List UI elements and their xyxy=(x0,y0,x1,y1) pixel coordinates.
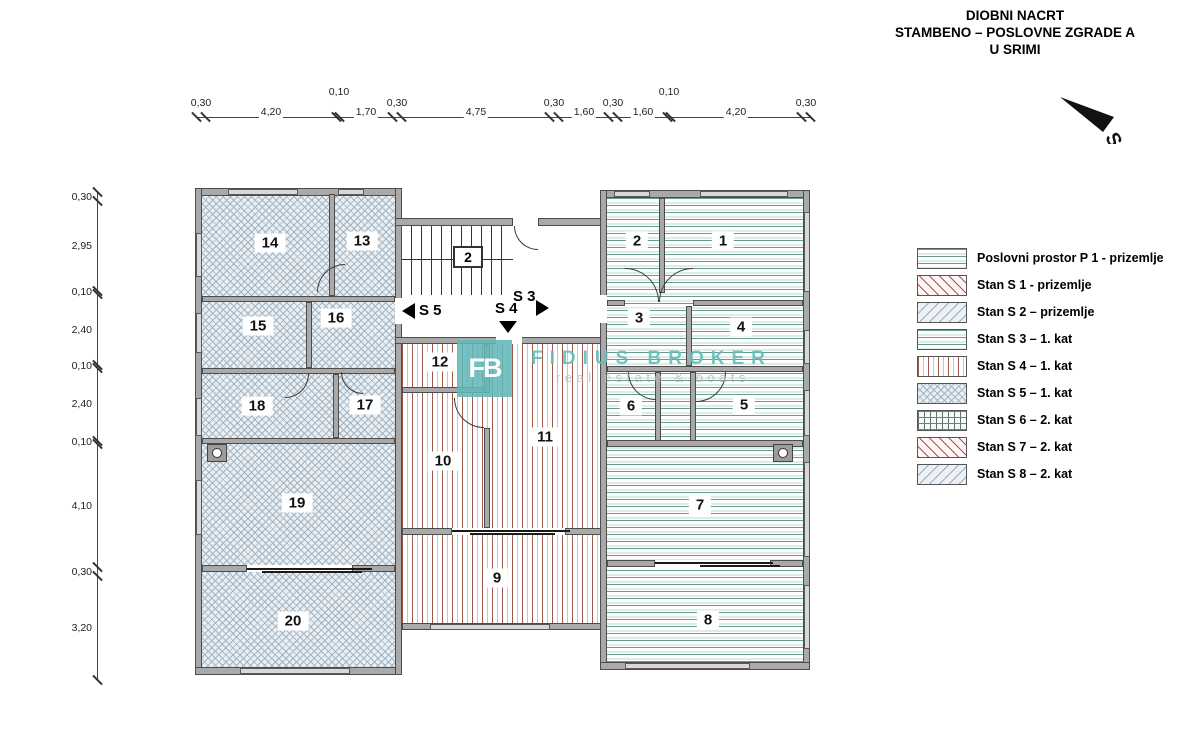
dim-label: 4,20 xyxy=(724,106,748,118)
door-gap xyxy=(600,295,607,323)
room-label-17: 17 xyxy=(350,396,381,415)
room-label-5: 5 xyxy=(733,396,755,415)
north-label: S xyxy=(1100,129,1126,144)
sliding-door xyxy=(470,533,555,535)
wall xyxy=(693,300,803,306)
room-label-1: 1 xyxy=(712,232,734,251)
legend-item: Poslovni prostor P 1 - prizemlje xyxy=(917,247,1164,269)
wall xyxy=(306,302,312,368)
dim-label: 0,30 xyxy=(70,191,94,203)
wall xyxy=(659,198,665,293)
floor-plan-page: DIOBNI NACRT STAMBENO – POSLOVNE ZGRADE … xyxy=(0,0,1200,734)
window xyxy=(196,233,202,277)
room-label-13: 13 xyxy=(347,232,378,251)
sliding-door xyxy=(655,562,773,564)
dim-label: 2,40 xyxy=(70,398,94,410)
legend-item: Stan S 7 – 2. kat xyxy=(917,436,1164,458)
window xyxy=(804,585,810,649)
legend-swatch-s7 xyxy=(917,437,967,458)
legend-item: Stan S 5 – 1. kat xyxy=(917,382,1164,404)
stair-tread xyxy=(501,226,502,295)
door-arc xyxy=(514,226,538,250)
window xyxy=(614,191,650,197)
dim-label: 1,60 xyxy=(631,106,655,118)
arrow-down-icon xyxy=(499,321,517,333)
legend-label: Poslovni prostor P 1 - prizemlje xyxy=(977,251,1164,265)
dim-label: 4,75 xyxy=(464,106,488,118)
stair-tread xyxy=(411,226,412,295)
legend-label: Stan S 6 – 2. kat xyxy=(977,413,1072,427)
sliding-door xyxy=(262,571,362,573)
dim-label: 4,20 xyxy=(259,106,283,118)
shaft-symbol xyxy=(207,444,227,462)
dim-label: 0,10 xyxy=(657,86,681,98)
legend: Poslovni prostor P 1 - prizemlje Stan S … xyxy=(917,247,1164,490)
stair-tread xyxy=(491,226,492,295)
page-title: DIOBNI NACRT STAMBENO – POSLOVNE ZGRADE … xyxy=(830,7,1200,58)
legend-item: Stan S 2 – prizemlje xyxy=(917,301,1164,323)
arrow-right-icon xyxy=(536,300,549,316)
wall xyxy=(395,188,402,675)
dim-label: 0,30 xyxy=(794,97,818,109)
wall xyxy=(195,188,402,196)
unit-marker-s5: S 5 xyxy=(419,302,442,319)
wall xyxy=(607,300,625,306)
sliding-door xyxy=(700,565,780,567)
wall xyxy=(402,528,452,535)
dim-label: 0,30 xyxy=(601,97,625,109)
window xyxy=(196,480,202,535)
room-label-6: 6 xyxy=(620,397,642,416)
room-label-19: 19 xyxy=(282,494,313,513)
window xyxy=(338,189,364,195)
room-label-11: 11 xyxy=(530,428,560,447)
legend-swatch-s6 xyxy=(917,410,967,431)
window xyxy=(228,189,298,195)
north-arrow-icon: S xyxy=(1046,88,1130,144)
dim-label: 4,10 xyxy=(70,500,94,512)
dim-label: 0,30 xyxy=(189,97,213,109)
watermark-name: FIDIUS BROKER xyxy=(531,348,772,370)
title-line2: STAMBENO – POSLOVNE ZGRADE A xyxy=(830,24,1200,41)
legend-swatch-s3 xyxy=(917,329,967,350)
room-label-3: 3 xyxy=(628,309,650,328)
window xyxy=(700,191,788,197)
legend-label: Stan S 1 - prizemlje xyxy=(977,278,1092,292)
sliding-door xyxy=(452,530,570,532)
legend-label: Stan S 8 – 2. kat xyxy=(977,467,1072,481)
legend-item: Stan S 6 – 2. kat xyxy=(917,409,1164,431)
room-label-4: 4 xyxy=(730,318,752,337)
shaft-symbol xyxy=(773,444,793,462)
legend-label: Stan S 5 – 1. kat xyxy=(977,386,1072,400)
legend-swatch-s8 xyxy=(917,464,967,485)
dim-label: 0,30 xyxy=(385,97,409,109)
title-line1: DIOBNI NACRT xyxy=(830,7,1200,24)
dim-label: 0,10 xyxy=(70,286,94,298)
wall xyxy=(538,218,607,226)
dim-label: 2,40 xyxy=(70,324,94,336)
room-label-16: 16 xyxy=(321,309,352,328)
top-dimension-line xyxy=(197,117,811,118)
wall xyxy=(202,438,395,444)
dim-label: 0,30 xyxy=(542,97,566,109)
dim-label: 3,20 xyxy=(70,622,94,634)
room-label-8: 8 xyxy=(697,611,719,630)
legend-swatch-s2 xyxy=(917,302,967,323)
dim-label: 0,10 xyxy=(70,436,94,448)
legend-item: Stan S 1 - prizemlje xyxy=(917,274,1164,296)
sliding-door xyxy=(247,568,372,570)
legend-item: Stan S 4 – 1. kat xyxy=(917,355,1164,377)
window xyxy=(196,398,202,436)
wall xyxy=(333,374,339,438)
door-gap xyxy=(395,298,402,324)
dim-label: 0,10 xyxy=(327,86,351,98)
wall xyxy=(600,190,607,670)
window xyxy=(804,330,810,364)
wall xyxy=(484,428,490,528)
window xyxy=(625,663,750,669)
legend-swatch-s5 xyxy=(917,383,967,404)
fidius-broker-logo: FB xyxy=(457,340,512,397)
stair-tread xyxy=(441,226,442,295)
dim-label: 1,60 xyxy=(572,106,596,118)
window xyxy=(804,212,810,292)
stair-tread xyxy=(451,226,452,295)
title-line3: U SRIMI xyxy=(830,41,1200,58)
dim-label: 0,30 xyxy=(70,566,94,578)
room-label-14: 14 xyxy=(255,234,286,253)
room-label-18: 18 xyxy=(242,397,273,416)
window xyxy=(804,390,810,436)
room-label-9: 9 xyxy=(486,569,508,588)
unit-marker-s3: S 3 xyxy=(513,288,536,305)
room-label-2: 2 xyxy=(626,232,648,251)
window xyxy=(196,313,202,353)
stair-tread xyxy=(431,226,432,295)
wall xyxy=(202,565,247,572)
dim-label: 0,10 xyxy=(70,360,94,372)
legend-item: Stan S 3 – 1. kat xyxy=(917,328,1164,350)
left-dimension-line xyxy=(97,192,98,680)
wall xyxy=(395,218,513,226)
arrow-left-icon xyxy=(402,303,415,319)
window xyxy=(430,624,550,630)
legend-item: Stan S 8 – 2. kat xyxy=(917,463,1164,485)
room-label-20: 20 xyxy=(278,612,309,631)
room-label-12: 12 xyxy=(425,353,456,372)
wall xyxy=(202,296,395,302)
dim-label: 1,70 xyxy=(354,106,378,118)
legend-swatch-s4 xyxy=(917,356,967,377)
stair-number-box: 2 xyxy=(453,246,483,268)
legend-label: Stan S 2 – prizemlje xyxy=(977,305,1094,319)
window xyxy=(804,462,810,557)
legend-label: Stan S 4 – 1. kat xyxy=(977,359,1072,373)
dim-label: 2,95 xyxy=(70,240,94,252)
room-label-10: 10 xyxy=(428,452,459,471)
room-label-7: 7 xyxy=(689,496,711,515)
legend-swatch-s1 xyxy=(917,275,967,296)
watermark-tagline: real estate & boats xyxy=(556,370,750,385)
legend-label: Stan S 7 – 2. kat xyxy=(977,440,1072,454)
room-label-15: 15 xyxy=(243,317,274,336)
wall xyxy=(607,560,655,567)
legend-swatch-p1 xyxy=(917,248,967,269)
legend-label: Stan S 3 – 1. kat xyxy=(977,332,1072,346)
stair-tread xyxy=(421,226,422,295)
window xyxy=(240,668,350,674)
